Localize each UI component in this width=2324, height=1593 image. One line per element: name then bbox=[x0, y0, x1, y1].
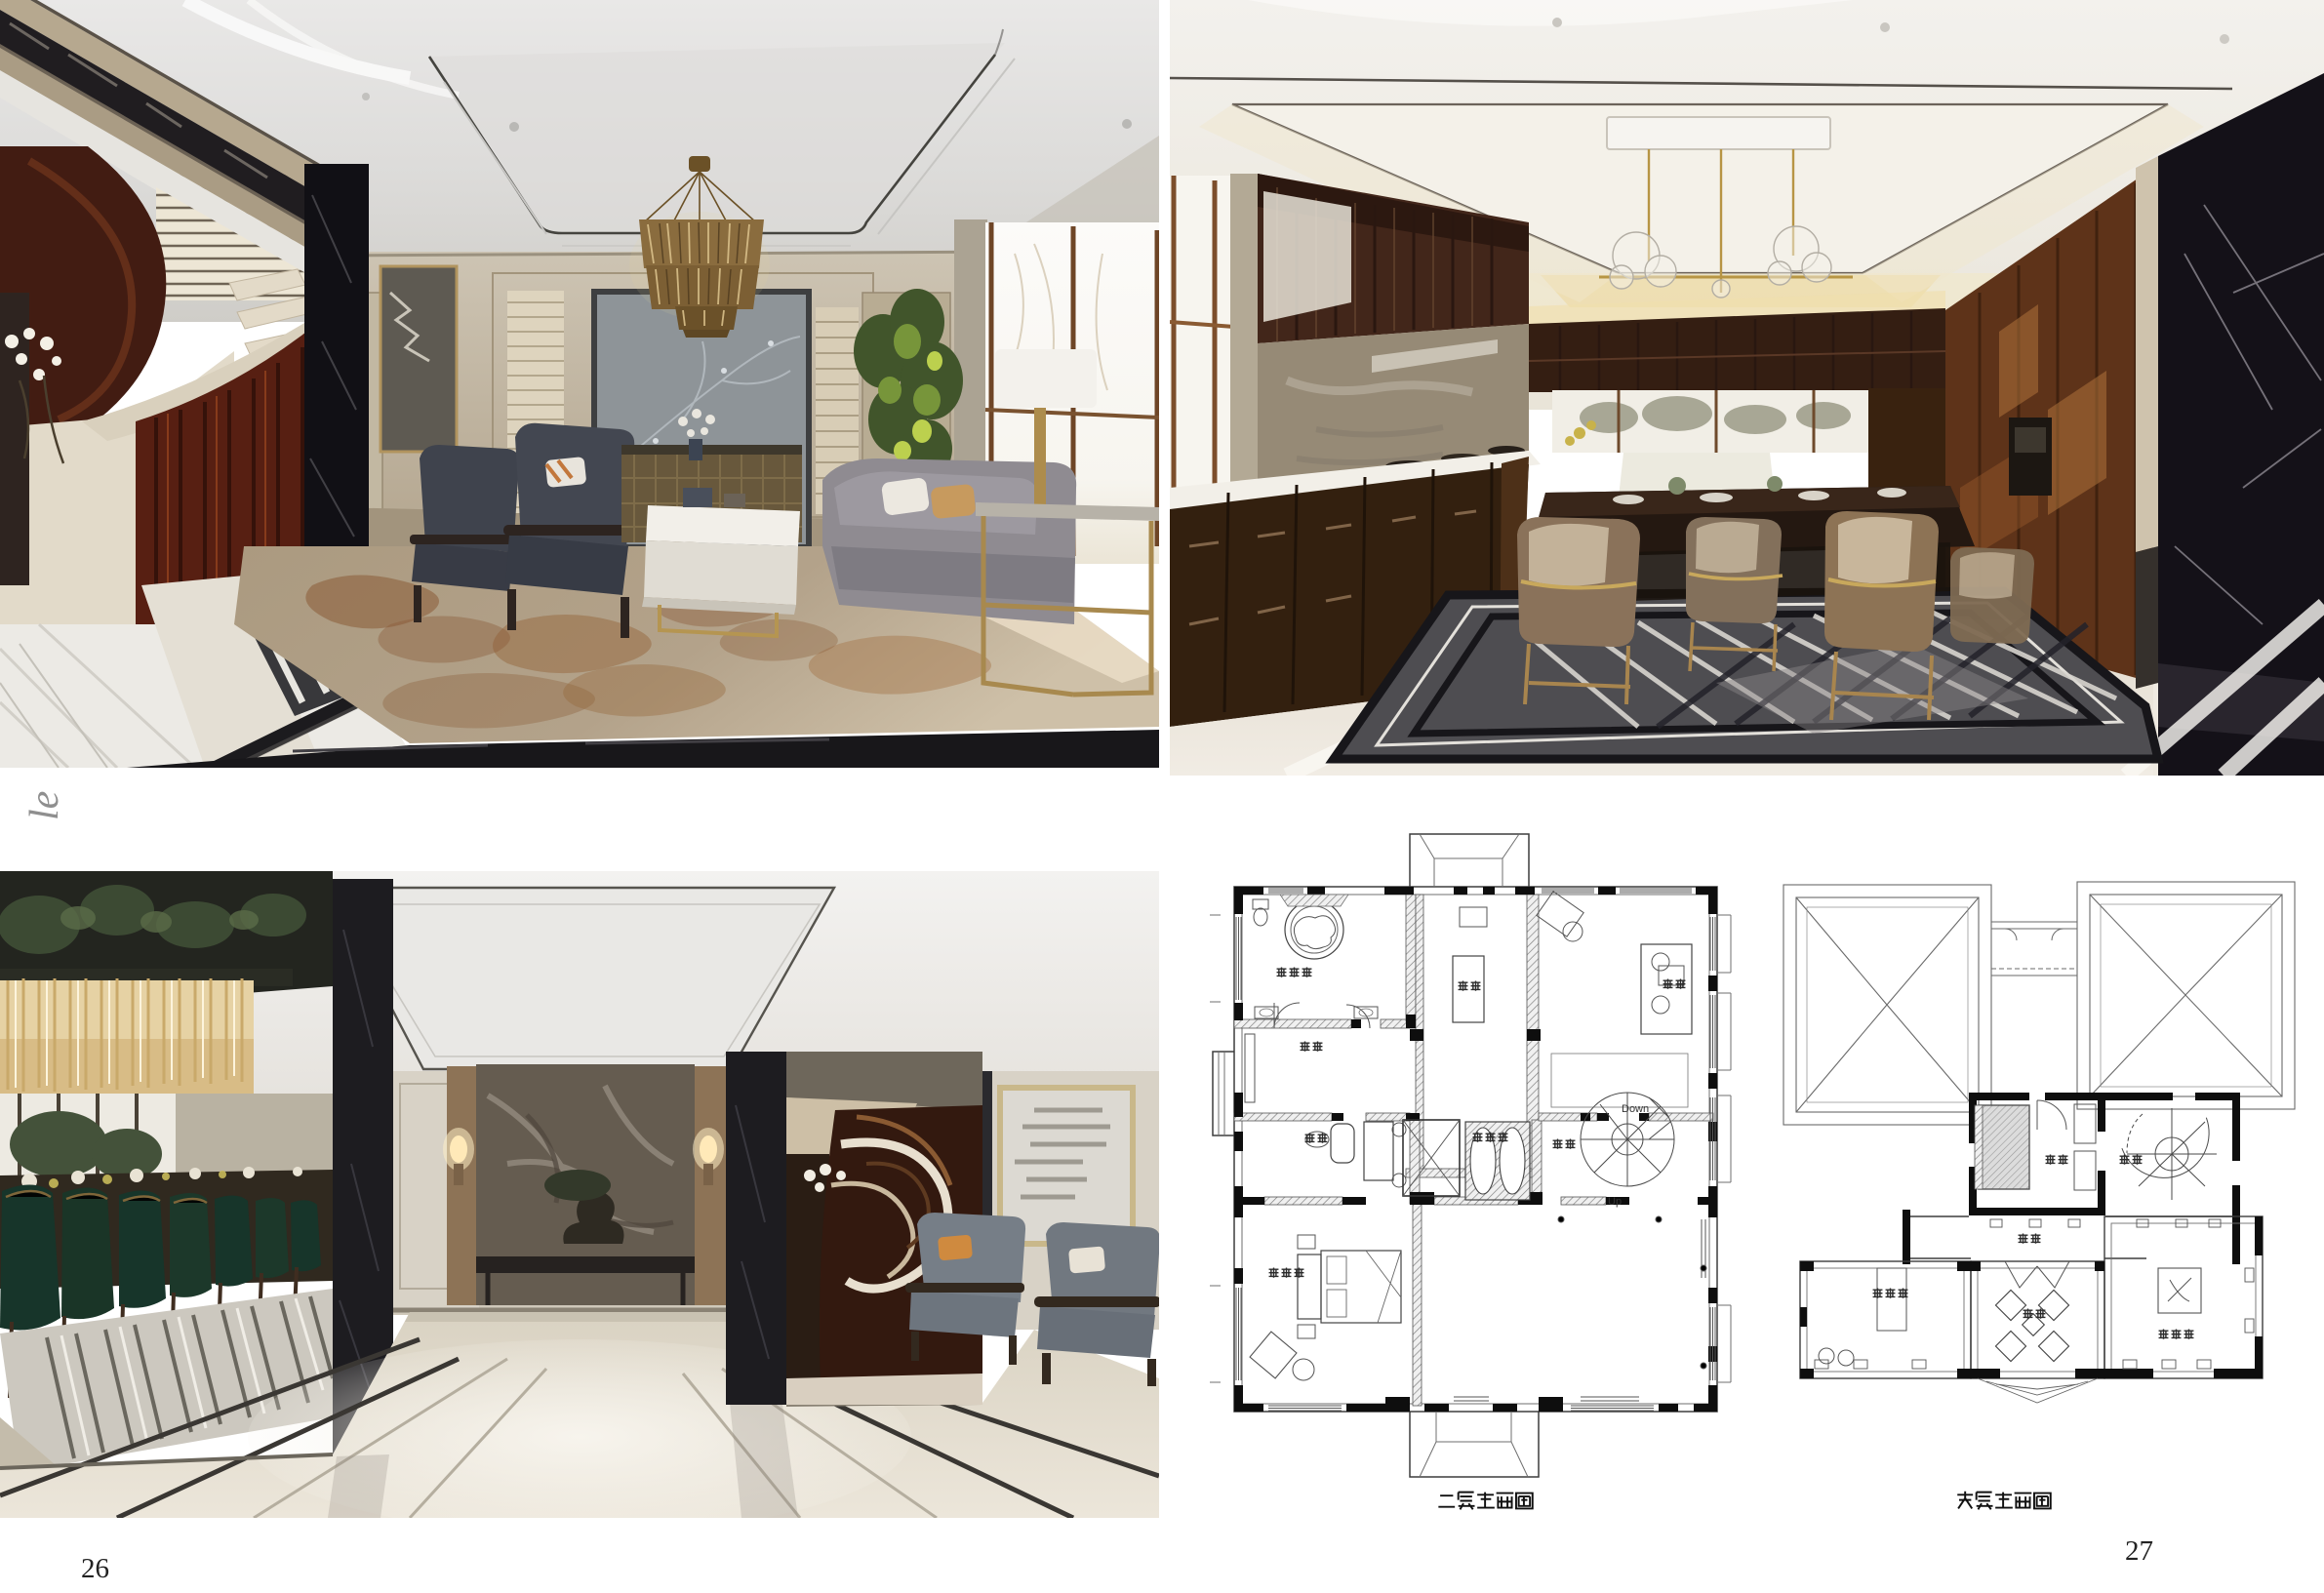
svg-text:Up: Up bbox=[1608, 1196, 1622, 1208]
svg-text:Down: Down bbox=[1622, 1103, 1649, 1115]
